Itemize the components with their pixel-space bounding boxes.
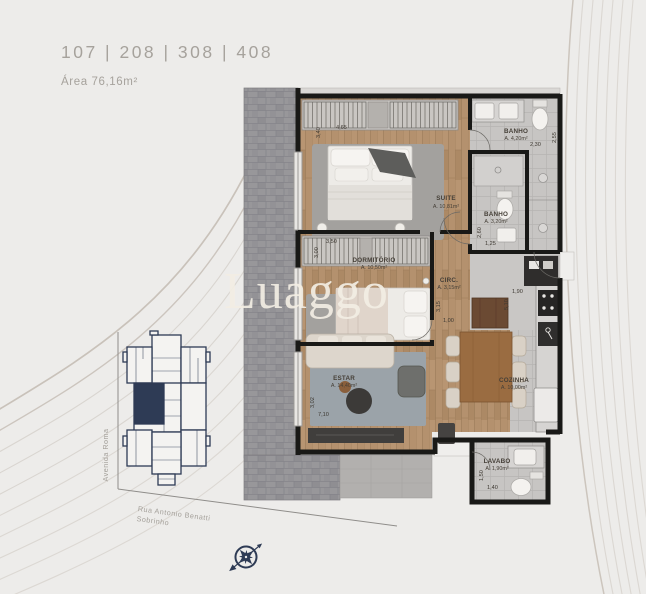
dim-circ-side: 3,15 bbox=[436, 301, 442, 312]
circ-area: A. 3,15m² bbox=[437, 285, 461, 291]
banho-social-area: A. 3,20m² bbox=[484, 219, 508, 225]
suite-closet bbox=[302, 100, 458, 130]
cozinha-label: COZINHA bbox=[499, 377, 529, 384]
dim-banho-social-side: 2,60 bbox=[477, 227, 483, 238]
dormitorio-area: A. 10,50m² bbox=[361, 265, 388, 271]
header-area-label: Área 76,16m² bbox=[61, 76, 138, 88]
dim-circ-top: 1,00 bbox=[443, 318, 454, 324]
dim-cozinha-top: 1,90 bbox=[512, 289, 523, 295]
dim-lavabo-side: 1,50 bbox=[479, 470, 485, 481]
floor-plan-canvas: SUITE A. 10,81m² BANHO A. 4,20m² BANHO A… bbox=[0, 0, 646, 594]
entry-porch bbox=[560, 252, 574, 280]
windows bbox=[294, 152, 302, 426]
planter-inset bbox=[434, 442, 470, 456]
suite-bed bbox=[312, 144, 444, 240]
suite-label: SUITE bbox=[436, 195, 456, 202]
page-background: SUITE A. 10,81m² BANHO A. 4,20m² BANHO A… bbox=[0, 0, 646, 594]
dim-cozinha-side: 5,10 bbox=[504, 299, 510, 310]
dim-banho-social-top: 1,25 bbox=[485, 241, 496, 247]
estar-area: A. 14,40m² bbox=[331, 383, 358, 389]
dining-set bbox=[446, 332, 526, 408]
circ-label: CIRC. bbox=[440, 277, 458, 284]
suite-area: A. 10,81m² bbox=[433, 204, 460, 210]
dim-estar-top: 7,10 bbox=[318, 412, 329, 418]
key-plan-highlighted-unit bbox=[135, 384, 164, 424]
estar-label: ESTAR bbox=[333, 375, 355, 382]
dim-estar-side: 3,02 bbox=[310, 397, 316, 408]
dormitorio-label: DORMITÓRIO bbox=[353, 255, 396, 264]
compass-rose-icon bbox=[222, 535, 268, 579]
lavabo-area: A. 1,90m² bbox=[485, 466, 509, 472]
dim-dormitorio-side: 3,00 bbox=[314, 247, 320, 258]
banho-suite-label: BANHO bbox=[504, 128, 528, 135]
header-unit-numbers: 107 | 208 | 308 | 408 bbox=[61, 42, 273, 63]
dim-suite-side: 3,40 bbox=[316, 127, 322, 138]
lavabo-label: LAVABO bbox=[484, 458, 511, 465]
street-avenida-roma: Avenida Roma bbox=[101, 428, 110, 481]
dim-suite-top: 4,65 bbox=[336, 125, 347, 131]
dim-banho-suite-top: 2,30 bbox=[530, 142, 541, 148]
cozinha-area: A. 10,00m² bbox=[501, 385, 528, 391]
dim-banho-suite-side: 2,55 bbox=[552, 132, 558, 143]
room-banho-suite-shower bbox=[527, 152, 560, 252]
banho-social-label: BANHO bbox=[484, 211, 508, 218]
dim-dormitorio-top: 3,50 bbox=[326, 239, 337, 245]
dim-lavabo-top: 1,40 bbox=[487, 485, 498, 491]
key-plan bbox=[123, 331, 210, 485]
banho-suite-area: A. 4,20m² bbox=[504, 136, 528, 142]
